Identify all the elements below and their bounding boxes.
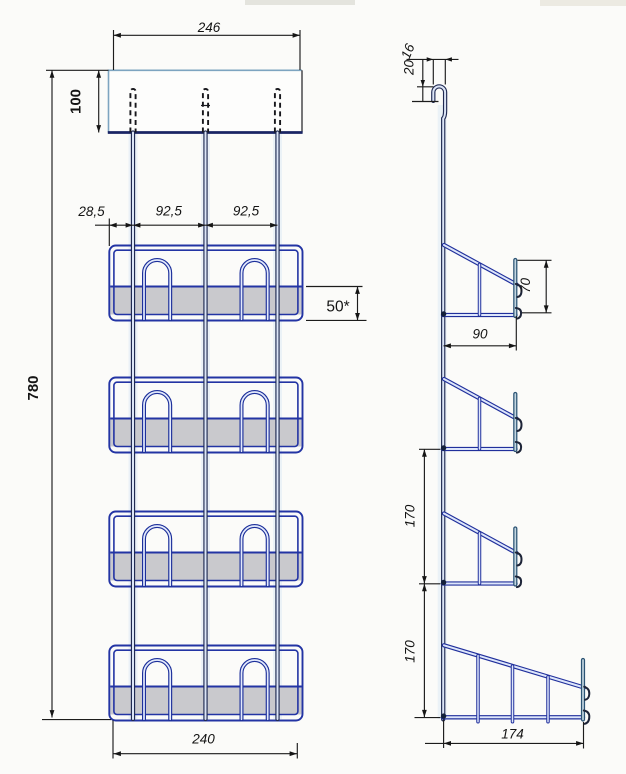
svg-text:240: 240 (191, 732, 215, 747)
svg-text:246: 246 (197, 20, 221, 35)
svg-text:174: 174 (501, 727, 524, 742)
svg-text:28,5: 28,5 (77, 204, 105, 219)
svg-text:50*: 50* (326, 299, 349, 316)
svg-text:90: 90 (472, 327, 488, 342)
svg-text:92,5: 92,5 (233, 204, 260, 219)
svg-text:100: 100 (68, 89, 85, 114)
svg-text:70: 70 (518, 278, 533, 294)
svg-text:170: 170 (403, 504, 418, 527)
svg-text:20: 20 (402, 60, 417, 77)
svg-text:92,5: 92,5 (156, 204, 183, 219)
svg-text:780: 780 (25, 375, 42, 400)
svg-text:170: 170 (403, 640, 418, 663)
